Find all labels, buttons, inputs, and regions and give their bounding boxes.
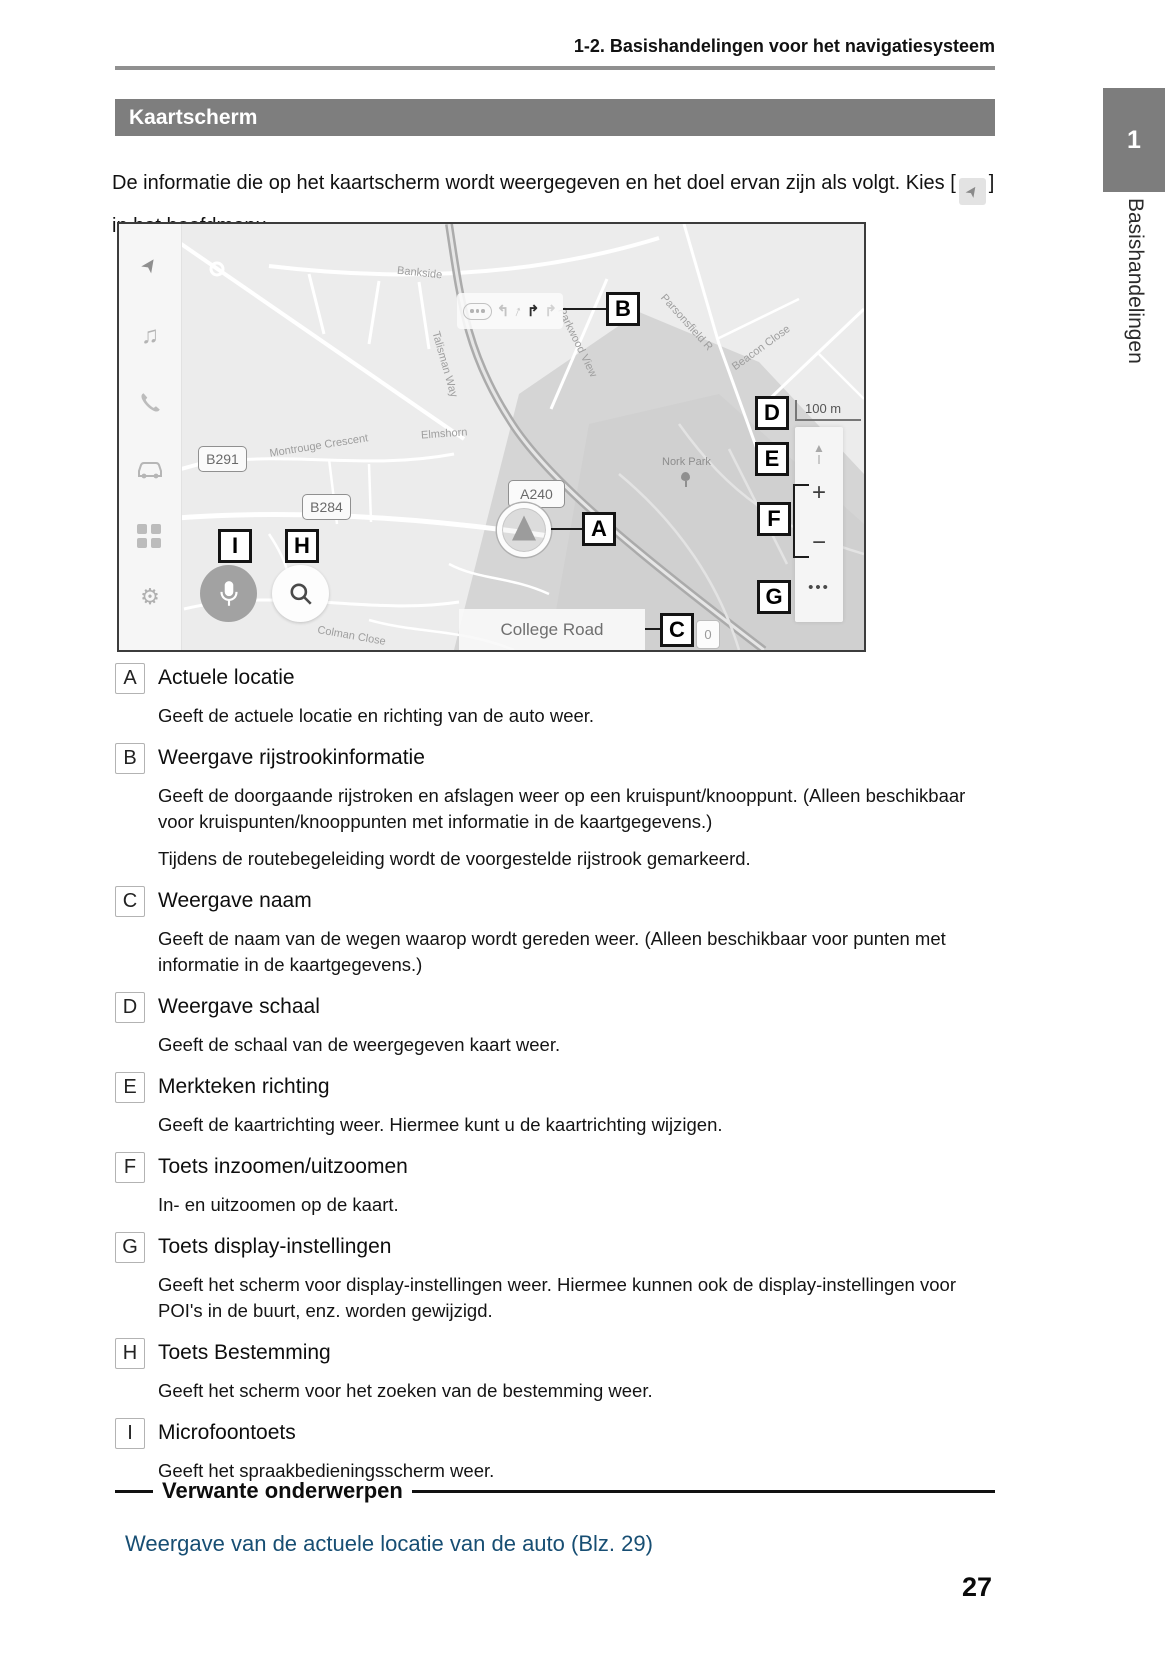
- lane-arrow-right2-icon: ↱: [544, 302, 557, 320]
- chapter-tab: 1: [1103, 88, 1165, 192]
- section-title: Kaartscherm: [115, 99, 995, 136]
- settings-gear-icon: ⚙: [119, 584, 181, 610]
- related-link[interactable]: Weergave van de actuele locatie van de a…: [125, 1531, 995, 1557]
- legend-item-a: A Actuele locatie Geeft de actuele locat…: [115, 660, 995, 729]
- legend-title-e: Merkteken richting: [158, 1075, 330, 1099]
- road-badge-b291: B291: [198, 446, 247, 472]
- legend-item-d: D Weergave schaal Geeft de schaal van de…: [115, 989, 995, 1058]
- legend-label-e: E: [115, 1072, 145, 1103]
- lane-arrow-slight-right-icon: ↑: [511, 302, 524, 321]
- current-road-name: College Road: [459, 609, 645, 650]
- map-screenshot: ➤ ♫ ⚙ Bankside Talisman Way Montrouge Cr…: [117, 222, 866, 652]
- legend-label-a: A: [115, 663, 145, 694]
- legend-label-c: C: [115, 886, 145, 917]
- legend-item-b: B Weergave rijstrookinformatie Geeft de …: [115, 740, 995, 872]
- apps-grid-icon: [137, 524, 163, 548]
- header-divider: [115, 66, 995, 70]
- legend-item-c: C Weergave naam Geeft de naam van de weg…: [115, 883, 995, 978]
- legend-desc-d: Geeft de schaal van de weergegeven kaart…: [158, 1032, 995, 1058]
- legend-label-d: D: [115, 992, 145, 1023]
- related-topics: Verwante onderwerpen Weergave van de act…: [115, 1478, 995, 1557]
- compass-icon: ▲: [795, 441, 843, 464]
- map-scale: 100 m: [795, 400, 861, 421]
- callout-a: A: [582, 512, 616, 546]
- legend-list: A Actuele locatie Geeft de actuele locat…: [115, 660, 995, 1495]
- legend-desc-e: Geeft de kaartrichting weer. Hiermee kun…: [158, 1112, 995, 1138]
- microphone-button: [200, 565, 257, 622]
- related-rule-right: [412, 1490, 995, 1493]
- legend-desc-g: Geeft het scherm voor display-instelling…: [158, 1272, 995, 1324]
- legend-desc-a: Geeft de actuele locatie en richting van…: [158, 703, 995, 729]
- navigation-icon: ➤: [119, 254, 181, 277]
- legend-desc-b1: Geeft de doorgaande rijstroken en afslag…: [158, 783, 995, 835]
- map-sidebar: ➤ ♫ ⚙: [119, 224, 182, 650]
- legend-item-g: G Toets display-instellingen Geeft het s…: [115, 1229, 995, 1324]
- current-location-marker: [497, 503, 551, 557]
- legend-item-i: I Microfoontoets Geeft het spraakbedieni…: [115, 1415, 995, 1484]
- connector-c: [645, 628, 660, 630]
- legend-desc-b2: Tijdens de routebegeleiding wordt de voo…: [158, 846, 995, 872]
- callout-i: I: [218, 529, 252, 563]
- vehicle-arrow-icon: [512, 516, 536, 541]
- legend-label-g: G: [115, 1232, 145, 1263]
- related-heading: Verwante onderwerpen: [162, 1478, 403, 1504]
- lane-info-bar: ↰ ↑ ↱ ↱: [457, 293, 563, 329]
- legend-item-e: E Merkteken richting Geeft de kaartricht…: [115, 1069, 995, 1138]
- legend-item-f: F Toets inzoomen/uitzoomen In- en uitzoo…: [115, 1149, 995, 1218]
- legend-title-i: Microfoontoets: [158, 1421, 296, 1445]
- connector-b: [563, 308, 606, 310]
- zero-badge: 0: [696, 620, 720, 649]
- manual-page: 1-2. Basishandelingen voor het navigatie…: [0, 0, 1165, 1653]
- chapter-side-label: Basishandelingen: [1123, 198, 1147, 364]
- connector-a: [551, 528, 582, 530]
- lane-ellipsis-pill: [463, 303, 492, 320]
- legend-label-f: F: [115, 1152, 145, 1183]
- search-button: [272, 565, 329, 622]
- related-rule-left: [115, 1490, 153, 1493]
- legend-title-c: Weergave naam: [158, 889, 312, 913]
- legend-title-h: Toets Bestemming: [158, 1341, 331, 1365]
- page-number: 27: [115, 1572, 992, 1603]
- callout-c: C: [660, 613, 694, 647]
- car-icon: [119, 458, 181, 487]
- search-icon: [288, 581, 314, 607]
- intro-text-before: De informatie die op het kaartscherm wor…: [112, 172, 956, 194]
- legend-title-f: Toets inzoomen/uitzoomen: [158, 1155, 408, 1179]
- legend-item-h: H Toets Bestemming Geeft het scherm voor…: [115, 1335, 995, 1404]
- lane-arrow-left-icon: ↰: [497, 302, 510, 320]
- map-menu-icon: ➤: [959, 178, 986, 205]
- legend-desc-h: Geeft het scherm voor het zoeken van de …: [158, 1378, 995, 1404]
- legend-title-b: Weergave rijstrookinformatie: [158, 746, 425, 770]
- legend-title-a: Actuele locatie: [158, 666, 295, 690]
- display-settings-button: •••: [795, 579, 843, 596]
- road-badge-b284: B284: [302, 494, 351, 520]
- legend-label-b: B: [115, 743, 145, 774]
- callout-h: H: [285, 529, 319, 563]
- callout-g: G: [757, 580, 791, 614]
- callout-f: F: [757, 502, 791, 536]
- callout-b: B: [606, 292, 640, 326]
- lane-arrow-right-icon: ↱: [527, 302, 540, 320]
- legend-title-g: Toets display-instellingen: [158, 1235, 391, 1259]
- legend-label-i: I: [115, 1418, 145, 1449]
- tree-icon: [681, 472, 690, 487]
- connector-f-bracket: [793, 484, 809, 558]
- legend-label-h: H: [115, 1338, 145, 1369]
- phone-icon: [119, 390, 181, 421]
- callout-d: D: [755, 396, 789, 430]
- poi-label-nork-park: Nork Park: [662, 456, 711, 468]
- chapter-breadcrumb: 1-2. Basishandelingen voor het navigatie…: [115, 36, 995, 57]
- music-icon: ♫: [119, 322, 181, 350]
- legend-desc-f: In- en uitzoomen op de kaart.: [158, 1192, 995, 1218]
- legend-title-d: Weergave schaal: [158, 995, 320, 1019]
- microphone-icon: [216, 579, 242, 609]
- callout-e: E: [755, 442, 789, 476]
- legend-desc-c: Geeft de naam van de wegen waarop wordt …: [158, 926, 995, 978]
